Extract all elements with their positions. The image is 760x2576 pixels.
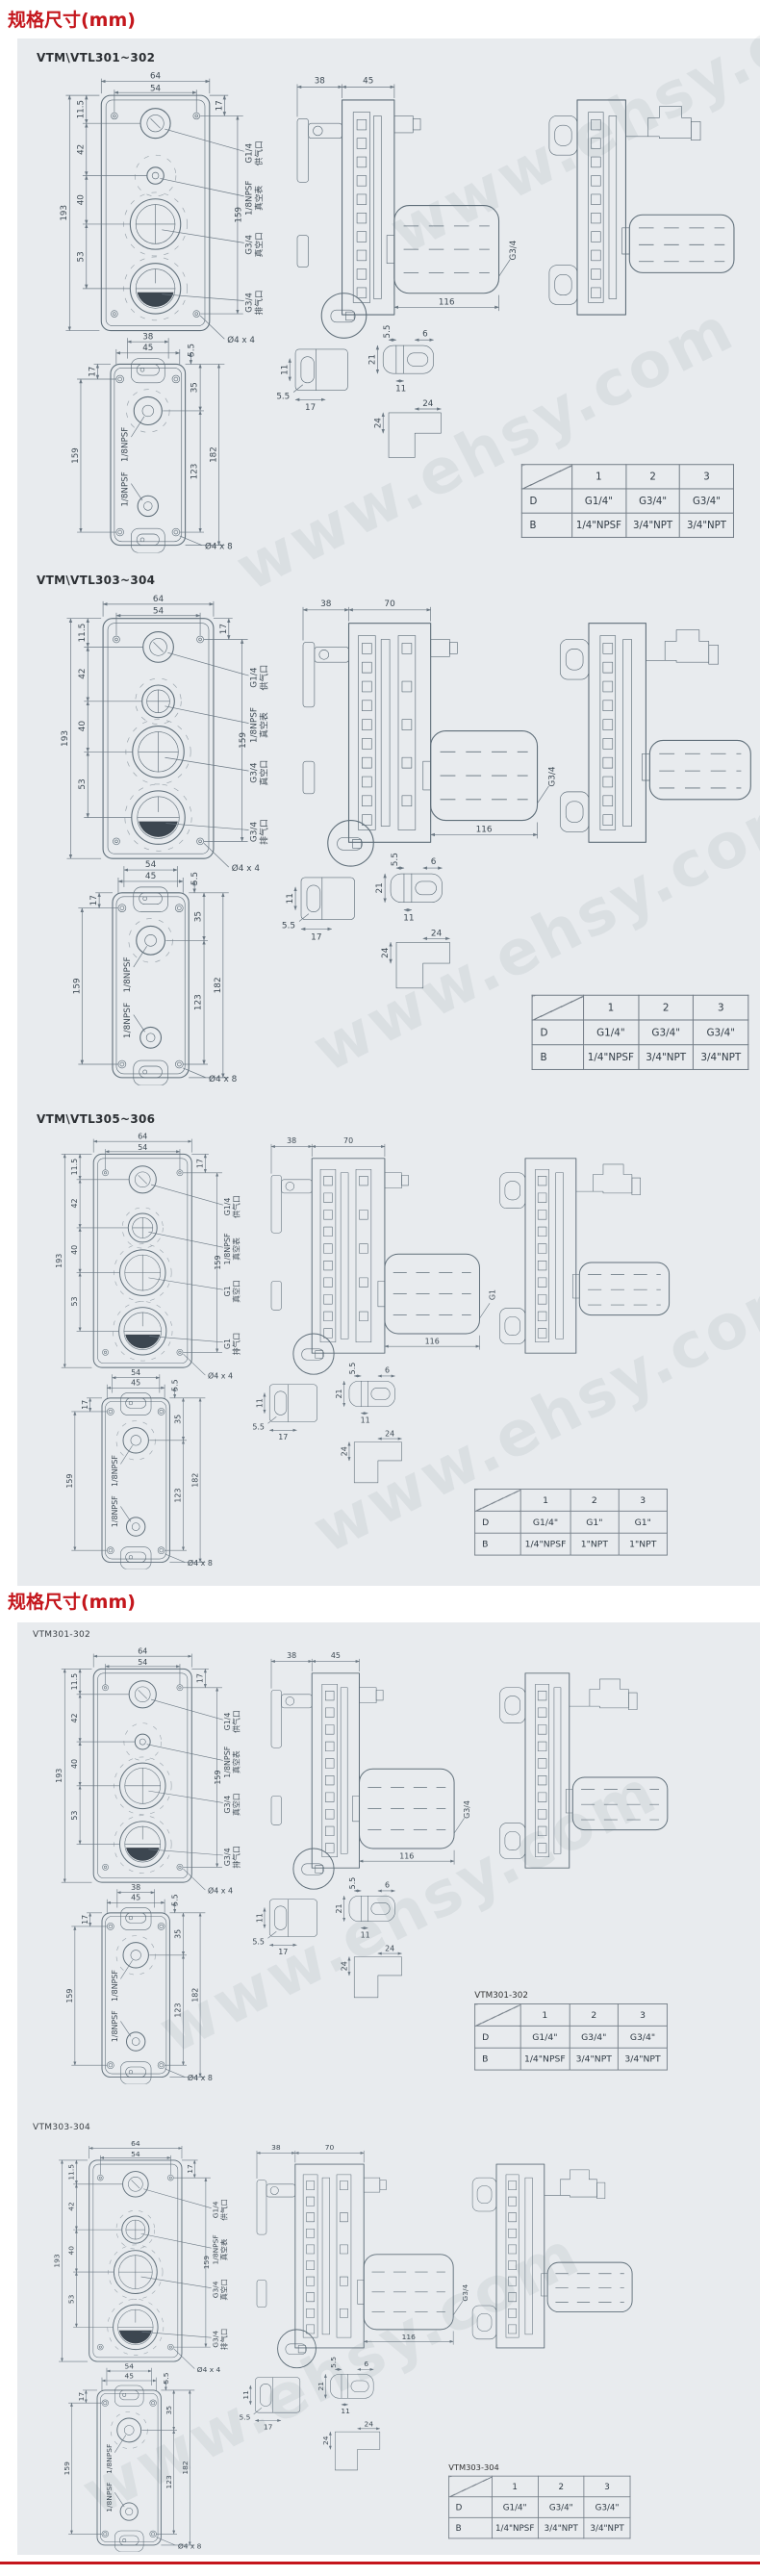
port-label: G3/4 [211,2331,219,2348]
table-corner-cell [521,465,571,489]
port-label-cn: 供气口 [232,1710,241,1733]
table-col-header: 2 [570,1489,619,1511]
dimension-drawing-set: 64 54 193 11.5 42 40 53 17 159 Ø4 x 4 G1… [17,1129,671,1569]
dim-label: 5.5 [190,872,200,885]
table-col-header: 3 [694,995,748,1020]
side-view-2 [472,2164,632,2348]
dim-label: 70 [384,599,395,609]
section-label-vtl305-306: VTM\VTL305~306 [37,1112,155,1126]
side-view-2 [500,1673,668,1868]
dim-label: 159 [239,732,248,749]
port-label: G1/4 [211,2201,219,2218]
hole-callout: Ø4 x 8 [205,542,233,552]
dim-label: 64 [138,1133,147,1141]
dim-label: 21 [375,882,385,893]
dim-label: 159 [214,1255,222,1269]
section-drawings-vtm303-304: 64 54 193 11.5 42 40 53 17 159 Ø4 x 4 G1… [17,2136,634,2552]
port-label: 1/8NPSF [223,1746,232,1777]
side-view-2 [549,100,734,315]
dim-label: 123 [173,1488,182,1502]
port-label-cn: 排气口 [253,290,265,315]
side-view [271,1673,454,1889]
spec-panel-2: VTM301-302 64 54 193 11.5 [17,1622,760,2555]
table-cell: G3/4" [584,2497,630,2518]
dim-label: 11 [403,914,414,924]
dim-label: 35 [165,2406,173,2415]
table-col-header: 1 [520,2003,570,2026]
dim-label: 182 [190,1988,199,2002]
page-title-2: 规格尺寸(mm) [8,1588,136,1614]
table-col-header: 3 [584,2476,630,2497]
side-view-2 [500,1159,670,1353]
port-label: G3/4 [211,2281,219,2298]
spec-panel-1: VTM\VTL301~302 64 54 193 1 [17,38,760,1586]
dim-label: 123 [194,994,204,1010]
dimension-drawing-set: 64 54 193 11.5 42 40 53 17 159 Ø4 x 4 G1… [17,67,738,552]
datasheet-page: 规格尺寸(mm) VTM\VTL301~302 64 54 19 [0,0,760,2576]
table-col-header: 2 [639,995,694,1020]
dim-label: 182 [181,2461,190,2474]
dim-label: 54 [138,1658,147,1667]
parts-dimensions: 11 5.5 17 5.5 6 21 11 24 24 [276,325,441,434]
dim-label: 17 [278,1433,288,1441]
footer-rule [0,2562,760,2564]
table-cell: 3/4"NPT [538,2517,584,2538]
table-cell: G1/4" [571,489,625,513]
port-label: G1 [223,1286,232,1296]
dim-label: 17 [89,367,98,377]
dim-label: 21 [368,354,378,365]
muffler-label: G1 [488,1289,496,1300]
dim-label: 24 [381,947,391,958]
dim-label: 116 [399,1852,414,1861]
detail-circle [321,293,367,339]
table-cell: 1/4"NPSF [583,1045,639,1070]
dim-label: 45 [124,2371,134,2380]
table-cell: G3/4" [680,489,734,513]
dim-label: 11 [361,1930,370,1939]
table-col-header: 2 [538,2476,584,2497]
page-title: 规格尺寸(mm) [8,6,136,32]
dim-label: 5.5 [348,1363,357,1375]
dim-label: 42 [70,1198,79,1208]
dim-label: 54 [145,860,157,870]
dim-label: 45 [131,1894,140,1902]
row-header: B [532,1045,583,1070]
port-label-cn: 供气口 [258,665,269,691]
dimension-drawing-set: 64 54 193 11.5 42 40 53 17 159 Ø4 x 4 G1… [17,1644,671,2084]
section-drawings-vtl305-306: 64 54 193 11.5 42 40 53 17 159 Ø4 x 4 G1… [17,1129,671,1569]
port-label-cn: 真空表 [258,712,269,738]
port-label-cn: 真空表 [218,2238,228,2260]
dim-label: 6 [385,1365,390,1374]
dim-label: 5.5 [252,1937,265,1946]
table-cell: G1/4" [520,2026,570,2048]
port-label: 1/8NPSF [105,2483,114,2512]
parts-dimensions: 11 5.5 17 5.5 6 21 11 24 24 [252,1363,401,1461]
table-cell: G1/4" [492,2497,538,2518]
dim-label: 35 [173,1415,182,1424]
muffler [649,740,750,799]
dim-label: 40 [78,721,88,732]
dim-label: 159 [65,1989,74,2003]
port-label: 1/8NPSF [120,427,130,462]
dim-label: 17 [186,2164,194,2174]
port-label: G1 [223,1339,232,1349]
port-label: 1/8NPSF [111,1495,119,1527]
table-title: VTM301-302 [474,1991,668,2003]
port-label: 1/8NPSF [105,2444,114,2474]
port-label-cn: 供气口 [232,1195,241,1218]
dim-label: 5.5 [252,1422,265,1431]
section-label-vtm303-304: VTM303-304 [33,2123,90,2132]
table-title: VTM303-304 [448,2463,630,2475]
dim-label: 11 [341,2407,350,2415]
muffler-label: G3/4 [461,2284,469,2302]
dim-label: 116 [476,825,493,834]
table-cell: 3/4"NPT [639,1045,694,1070]
dim-label: 11.5 [76,100,86,118]
port-label: G1/4 [249,667,259,688]
port-label: 1/8NPSF [223,1233,232,1264]
port-label-cn: 真空表 [232,1237,241,1261]
dim-label: 182 [210,446,219,463]
dim-label: 17 [305,403,316,413]
detail-circle [278,2330,317,2368]
side-view [297,100,499,338]
table-cell: 3/4"NPT [626,513,680,537]
dim-label: 24 [385,1429,394,1438]
dim-label: 70 [325,2143,335,2152]
dim-label: 24 [431,929,443,938]
dim-label: 5.5 [170,1379,179,1391]
port-label: 1/8NPSF [249,707,259,743]
dim-label: 116 [439,297,455,307]
table-col-header: 1 [520,1489,570,1511]
table-col-header: 2 [626,465,680,489]
dim-label: 11 [286,893,295,904]
dim-label: 38 [320,599,332,609]
hole-callout: Ø4 x 8 [188,2073,213,2082]
hole-callout: Ø4 x 8 [209,1074,238,1084]
table-header-row: 1 2 3 [475,2003,668,2026]
front-view [93,1154,191,1367]
dim-label: 116 [402,2333,417,2341]
front-view [89,2160,182,2361]
detail-circle [293,1849,334,1889]
dim-label: 42 [67,2202,76,2211]
dim-label: 64 [131,2139,140,2148]
port-label-cn: 排气口 [258,819,269,845]
dim-label: 17 [311,932,321,942]
dim-label: 193 [53,2254,62,2268]
dim-label: 40 [70,1245,79,1255]
dim-label: 193 [55,1254,63,1268]
table-cell: G3/4" [619,2026,668,2048]
table-row: D G1/4" G3/4" G3/4" [449,2497,630,2518]
hole-callout: Ø4 x 4 [227,335,255,345]
section-label-vtl303-304: VTM\VTL303~304 [37,574,155,587]
dim-label: 45 [142,344,153,353]
table-col-header: 3 [619,1489,667,1511]
row-header: D [449,2497,492,2518]
muffler [579,1262,669,1315]
table-row: D G1/4" G3/4" G3/4" [475,2026,668,2048]
dim-label: 17 [77,2392,86,2402]
table-title [521,450,734,465]
muffler-label: G3/4 [509,240,519,260]
port-size-table: VTM303-304 1 2 3 D G1/4" G3/4" G3/4" B 1… [448,2463,630,2538]
section-label-vtl301-302: VTM\VTL301~302 [37,51,155,64]
parts-dimensions: 11 5.5 17 5.5 6 21 11 24 24 [282,853,450,963]
table-cell: 1/4"NPSF [492,2517,538,2538]
port-label: G1/4 [223,1198,232,1216]
dim-label: 159 [214,1770,222,1784]
port-label-cn: 排气口 [232,1333,241,1356]
port-label-cn: 真空口 [218,2279,228,2300]
dim-label: 5.5 [391,853,400,866]
dim-label: 5.5 [348,1877,357,1890]
port-label-cn: 真空口 [232,1793,241,1816]
port-label: 1/8NPSF [120,472,130,506]
table-cell: G3/4" [639,1020,694,1045]
table-col-header: 1 [492,2476,538,2497]
table-row: D G1/4" G3/4" G3/4" [521,489,733,513]
dim-label: 11 [255,1398,264,1408]
table-cell: 3/4"NPT [680,513,734,537]
port-size-table: VTM301-302 1 2 3 D G1/4" G3/4" G3/4" B 1… [474,1991,668,2071]
dim-label: 11 [395,385,406,395]
dim-label: 21 [317,2382,325,2391]
port-label-cn: 真空口 [258,760,269,786]
dim-label: 159 [234,207,243,223]
dim-label: 123 [173,2002,182,2017]
detail-circle [293,1334,334,1374]
dim-label: 64 [138,1647,147,1656]
dim-label: 38 [287,1651,296,1660]
dim-label: 5.5 [383,325,393,339]
table-row: B 1/4"NPSF 3/4"NPT 3/4"NPT [521,513,733,537]
side-view [271,1159,479,1374]
dim-label: 17 [81,1400,89,1410]
table-cell: 3/4"NPT [570,2048,619,2070]
table-row: B 1/4"NPSF 3/4"NPT 3/4"NPT [449,2517,630,2538]
dim-label: 38 [315,76,325,86]
table-cell: 1/4"NPSF [571,513,625,537]
table-cell: 1/4"NPSF [520,2048,570,2070]
dimension-drawing-set: 64 54 193 11.5 42 40 53 17 159 Ø4 x 4 G1… [17,2136,634,2552]
port-label: 1/8NPSF [123,956,133,992]
muffler [572,1777,668,1830]
side-dimensions: 38 70 116 G1 [271,1136,496,1350]
table-cell: 1"NPT [570,1533,619,1555]
dim-label: 6 [422,329,428,339]
dim-label: 24 [340,1961,348,1971]
table-cell: G1/4" [520,1511,570,1533]
table-cell: G3/4" [570,2026,619,2048]
table-col-header: 3 [680,465,734,489]
table-corner-cell [449,2476,492,2497]
vacuum-gauge-port [147,167,164,184]
dim-label: 38 [287,1136,296,1145]
table-cell: 1"NPT [619,1533,667,1555]
side-view [257,2164,453,2368]
hole-callout: Ø4 x 8 [188,1558,213,1568]
row-header: D [475,1511,521,1533]
table-title [474,1476,668,1489]
side-view [303,624,538,866]
port-label: 1/8NPSF [123,1003,133,1038]
table-row: D G1/4" G1" G1" [475,1511,668,1533]
dim-label: 5.5 [239,2413,250,2422]
dim-label: 38 [131,1883,140,1892]
dim-label: 64 [150,72,162,82]
hole-callout: Ø4 x 4 [208,1371,233,1381]
dim-label: 17 [196,1673,205,1683]
dim-label: 17 [278,1948,288,1956]
dim-label: 17 [219,624,229,634]
rear-dimensions: 38 45 17 159 35 123 182 5.5 1/8NPSF 1/8N… [71,332,233,551]
dim-label: 21 [335,1389,343,1398]
hole-callout: Ø4 x 8 [178,2541,202,2550]
table-row: B 1/4"NPSF 1"NPT 1"NPT [475,1533,668,1555]
port-label-cn: 供气口 [253,140,265,166]
table-cell: G1" [570,1511,619,1533]
dim-label: 159 [202,2256,211,2270]
table-cell: G1" [619,1511,667,1533]
dim-label: 21 [335,1903,343,1913]
row-header: B [521,513,571,537]
table-cell: 3/4"NPT [584,2517,630,2538]
port-label-cn: 排气口 [218,2329,228,2350]
dim-label: 53 [70,1296,79,1306]
port-label: 1/8NPSF [111,1455,119,1487]
dim-label: 193 [55,1769,63,1783]
dim-label: 17 [89,895,99,905]
dim-label: 24 [422,399,434,409]
dim-label: 45 [363,76,373,86]
dim-label: 11.5 [78,624,88,643]
dim-label: 35 [194,911,204,922]
dim-label: 54 [131,2150,140,2158]
dim-label: 45 [331,1651,341,1660]
dim-label: 5.5 [187,344,196,357]
table-header-row: 1 2 3 [532,995,748,1020]
section-drawings-vtl301-302: 64 54 193 11.5 42 40 53 17 159 Ø4 x 4 G1… [17,67,738,552]
dim-label: 5.5 [162,2372,170,2384]
dim-label: 5.5 [329,2357,338,2368]
row-header: B [449,2517,492,2538]
muffler [547,2262,632,2311]
side-view-2 [560,624,750,843]
dim-label: 42 [76,144,86,155]
dim-label: 35 [190,382,200,393]
dim-label: 45 [131,1379,140,1388]
dim-label: 54 [138,1143,147,1152]
detail-circle [328,821,374,867]
dim-label: 193 [61,730,70,747]
dim-label: 54 [153,607,165,617]
port-label: 1/8NPSF [211,2234,219,2264]
dim-label: 11 [280,365,290,375]
hole-callout: Ø4 x 4 [208,1886,233,1896]
table-row: D G1/4" G3/4" G3/4" [532,1020,748,1045]
side-dimensions: 38 70 116 G3/4 [257,2143,469,2345]
dim-label: 6 [385,1880,390,1889]
dim-label: 123 [190,464,200,480]
muffler-label: G3/4 [547,766,557,787]
dim-label: 159 [63,2461,71,2476]
table-col-header: 3 [619,2003,668,2026]
muffler [629,215,734,272]
dim-label: 53 [67,2294,76,2304]
table-col-header: 2 [570,2003,619,2026]
hole-callout: Ø4 x 4 [232,863,261,874]
front-view [103,619,214,858]
muffler-label: G3/4 [463,1800,471,1819]
port-label: G1/4 [244,142,254,163]
port-label-cn: 真空表 [253,185,265,210]
dim-label: 24 [340,1446,348,1456]
row-header: D [521,489,571,513]
table-cell: G3/4" [538,2497,584,2518]
dim-label: 17 [196,1159,205,1168]
table-header-row: 1 2 3 [475,1489,668,1511]
port-size-table: 1 2 3 D G1/4" G3/4" G3/4" B 1/4"NPSF 3/4… [532,981,749,1070]
dim-label: 24 [364,2419,373,2428]
port-label-cn: 排气口 [232,1846,241,1869]
port-label: 1/8NPSF [111,2010,119,2042]
dim-label: 182 [214,977,223,993]
dim-label: 17 [81,1915,89,1925]
dim-label: 38 [142,332,153,342]
dim-label: 24 [373,418,383,429]
dimension-drawing-set: 64 54 193 11.5 42 40 53 17 159 Ø4 x 4 G1… [17,590,752,1085]
row-header: D [475,2026,520,2048]
table-cell: G1/4" [583,1020,639,1045]
dim-label: 11 [255,1913,264,1923]
section-label-vtm301-302: VTM301-302 [33,1630,90,1640]
row-header: B [475,1533,521,1555]
dim-label: 42 [70,1713,79,1722]
port-label: G3/4 [244,234,254,254]
dim-label: 42 [78,668,88,678]
table-corner-cell [532,995,583,1020]
port-label-cn: 真空表 [232,1750,241,1773]
table-col-header: 1 [583,995,639,1020]
dim-label: 159 [71,447,81,464]
dim-label: 24 [385,1944,394,1952]
dim-label: 24 [321,2436,330,2445]
section-drawings-vtl303-304: 64 54 193 11.5 42 40 53 17 159 Ø4 x 4 G1… [17,590,752,1085]
port-label-cn: 供气口 [218,2199,228,2220]
table-cell: G3/4" [626,489,680,513]
table-cell: 3/4"NPT [694,1045,748,1070]
dim-label: 182 [190,1473,199,1488]
dim-label: 6 [364,2359,368,2368]
table-cell: 3/4"NPT [619,2048,668,2070]
table-title [532,981,749,995]
table-col-header: 1 [571,465,625,489]
dim-label: 53 [78,778,88,789]
dim-label: 5.5 [276,392,290,401]
table-cell: G3/4" [694,1020,748,1045]
table-row: B 1/4"NPSF 3/4"NPT 3/4"NPT [475,2048,668,2070]
dim-label: 45 [145,872,156,881]
port-label: G3/4 [244,293,254,313]
table-row: B 1/4"NPSF 3/4"NPT 3/4"NPT [532,1045,748,1070]
dim-label: 159 [72,978,82,994]
